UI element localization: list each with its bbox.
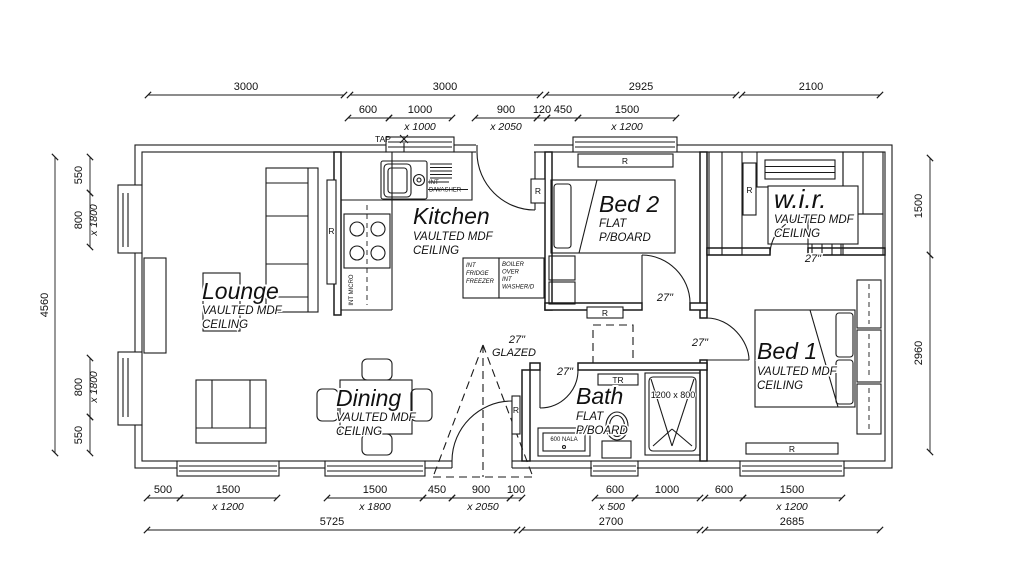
svg-text:1000: 1000 (655, 484, 679, 496)
svg-text:x 1200: x 1200 (775, 501, 808, 513)
pillow (836, 313, 853, 357)
svg-text:OVER: OVER (502, 270, 520, 276)
svg-text:2925: 2925 (629, 81, 653, 93)
svg-text:27": 27" (691, 337, 709, 349)
svg-text:1500: 1500 (216, 484, 240, 496)
dishwasher-label: INT (429, 180, 439, 186)
svg-text:FLAT: FLAT (599, 218, 627, 230)
svg-text:3000: 3000 (234, 81, 258, 93)
svg-text:R: R (746, 185, 752, 195)
svg-text:900: 900 (472, 484, 490, 496)
tap-label: TAP (375, 134, 391, 144)
svg-text:1000: 1000 (408, 104, 432, 116)
pillow (554, 184, 571, 248)
bed2-label: Bed 2 (599, 191, 659, 217)
svg-text:x 1800: x 1800 (358, 501, 391, 513)
svg-text:1500: 1500 (615, 104, 639, 116)
svg-text:x 2050: x 2050 (489, 121, 522, 133)
svg-text:VAULTED MDF: VAULTED MDF (202, 305, 283, 317)
svg-text:550: 550 (73, 166, 85, 184)
svg-text:2700: 2700 (599, 516, 623, 528)
svg-text:VAULTED MDF: VAULTED MDF (757, 366, 838, 378)
svg-text:D/WASHER: D/WASHER (429, 188, 462, 194)
svg-text:R: R (328, 226, 334, 236)
lounge-label: Lounge (202, 278, 279, 304)
glazed-label: GLAZED (492, 347, 536, 359)
svg-text:600: 600 (359, 104, 377, 116)
pillow (836, 360, 853, 404)
svg-text:R: R (602, 308, 608, 318)
vanity-label: 600 NALA (550, 437, 577, 443)
svg-text:R: R (789, 444, 795, 454)
hall-fixtures (593, 325, 633, 363)
svg-text:500: 500 (154, 484, 172, 496)
svg-text:R: R (513, 405, 519, 415)
svg-text:BOILER: BOILER (502, 262, 525, 268)
svg-text:x 1200: x 1200 (610, 121, 643, 133)
svg-text:2100: 2100 (799, 81, 823, 93)
svg-text:27": 27" (656, 292, 674, 304)
svg-text:1500: 1500 (363, 484, 387, 496)
svg-text:FRIDGE: FRIDGE (466, 271, 490, 277)
dining-label: Dining (336, 385, 401, 411)
nightstand (549, 282, 575, 304)
armchair (196, 380, 266, 443)
svg-text:P/BOARD: P/BOARD (599, 232, 651, 244)
svg-text:550: 550 (73, 426, 85, 444)
shower-size: 1200 x 800 (651, 390, 696, 400)
svg-text:CEILING: CEILING (774, 228, 820, 240)
svg-text:27": 27" (804, 253, 822, 265)
svg-text:x 1800: x 1800 (88, 371, 100, 404)
svg-text:x 1800: x 1800 (88, 204, 100, 237)
tv-unit (144, 258, 166, 353)
nightstand (549, 256, 575, 280)
svg-text:VAULTED MDF: VAULTED MDF (413, 231, 494, 243)
svg-text:27": 27" (556, 366, 574, 378)
wir-label: w.i.r. (774, 184, 826, 214)
svg-text:2960: 2960 (913, 341, 925, 365)
svg-text:VAULTED MDF: VAULTED MDF (774, 214, 855, 226)
svg-text:INT: INT (502, 277, 513, 283)
svg-text:INT: INT (466, 263, 477, 269)
svg-text:x 1000: x 1000 (403, 121, 436, 133)
svg-text:800: 800 (73, 211, 85, 229)
chair (362, 359, 392, 380)
loft-hatch (593, 325, 633, 363)
svg-text:R: R (622, 156, 628, 166)
svg-text:R: R (535, 186, 541, 196)
svg-text:1500: 1500 (780, 484, 804, 496)
dimensions-top: 3000 3000 2925 2100 600 1000 x 1000 900 … (148, 81, 880, 133)
svg-text:450: 450 (428, 484, 446, 496)
kitchen-label: Kitchen (413, 203, 490, 229)
svg-text:WASHER/D: WASHER/D (502, 285, 535, 291)
chair (317, 389, 338, 421)
svg-text:120: 120 (533, 104, 551, 116)
dimensions-bottom: 500 1500 x 1200 1500 x 1800 450 900 x 20… (147, 484, 880, 530)
dimensions-right: 1500 2960 (913, 158, 930, 452)
svg-text:CEILING: CEILING (202, 319, 248, 331)
dimensions-left: 4560 550 800 x 1800 800 x 1800 550 (39, 157, 100, 453)
bed1-label: Bed 1 (757, 338, 817, 364)
floorplan-svg: INT D/WASHER INT MICRO INT FRIDGE FREEZE… (0, 0, 1024, 584)
svg-text:x 2050: x 2050 (466, 501, 499, 513)
floorplan-page: INT D/WASHER INT MICRO INT FRIDGE FREEZE… (0, 0, 1024, 584)
svg-text:FLAT: FLAT (576, 411, 604, 423)
svg-text:P/BOARD: P/BOARD (576, 425, 628, 437)
svg-text:4560: 4560 (39, 293, 51, 317)
entry-door-arc (452, 401, 512, 461)
svg-text:x 1200: x 1200 (211, 501, 244, 513)
svg-text:CEILING: CEILING (413, 245, 459, 257)
svg-text:3000: 3000 (433, 81, 457, 93)
svg-text:FREEZER: FREEZER (466, 279, 495, 285)
bed1-door-arc (707, 318, 749, 360)
svg-text:5725: 5725 (320, 516, 344, 528)
svg-text:x 500: x 500 (598, 501, 625, 513)
shelf-unit (757, 152, 843, 187)
svg-text:27": 27" (508, 334, 526, 346)
svg-text:1500: 1500 (913, 194, 925, 218)
bath-label: Bath (576, 383, 623, 409)
svg-text:VAULTED MDF: VAULTED MDF (336, 412, 417, 424)
svg-text:600: 600 (715, 484, 733, 496)
svg-text:900: 900 (497, 104, 515, 116)
backdoor-arc (477, 152, 535, 210)
wardrobe (709, 152, 742, 255)
svg-text:CEILING: CEILING (757, 380, 803, 392)
svg-text:CEILING: CEILING (336, 426, 382, 438)
svg-text:600: 600 (606, 484, 624, 496)
svg-text:800: 800 (73, 378, 85, 396)
svg-text:100: 100 (507, 484, 525, 496)
svg-text:450: 450 (554, 104, 572, 116)
micro-label: INT MICRO (349, 274, 355, 306)
svg-text:2685: 2685 (780, 516, 804, 528)
